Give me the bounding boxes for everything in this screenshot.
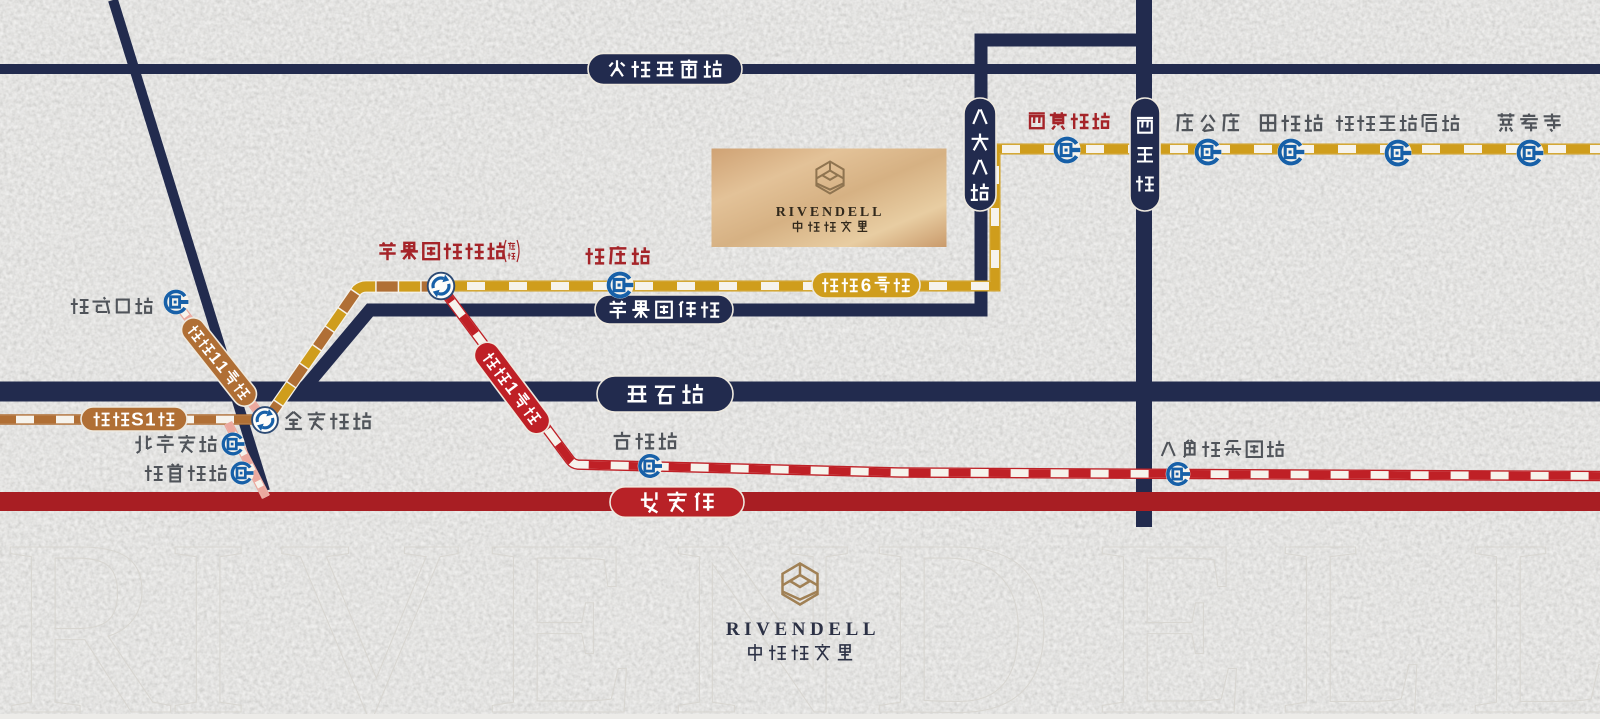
svg-text:R: R <box>3 487 171 714</box>
svg-text:L: L <box>1468 487 1600 714</box>
svg-text:E: E <box>485 487 639 714</box>
svg-text:D: D <box>872 487 1054 714</box>
svg-text:RIVENDELL: RIVENDELL <box>776 205 884 220</box>
svg-text:RIVENDELL: RIVENDELL <box>726 619 880 640</box>
svg-text:1: 1 <box>145 410 156 431</box>
svg-text:S: S <box>131 410 144 431</box>
svg-text:E: E <box>1095 487 1249 714</box>
svg-text:N: N <box>671 487 853 714</box>
svg-text:I: I <box>166 487 250 714</box>
svg-text:L: L <box>1278 487 1432 714</box>
svg-text:6: 6 <box>861 276 872 297</box>
svg-text:V: V <box>279 487 461 714</box>
